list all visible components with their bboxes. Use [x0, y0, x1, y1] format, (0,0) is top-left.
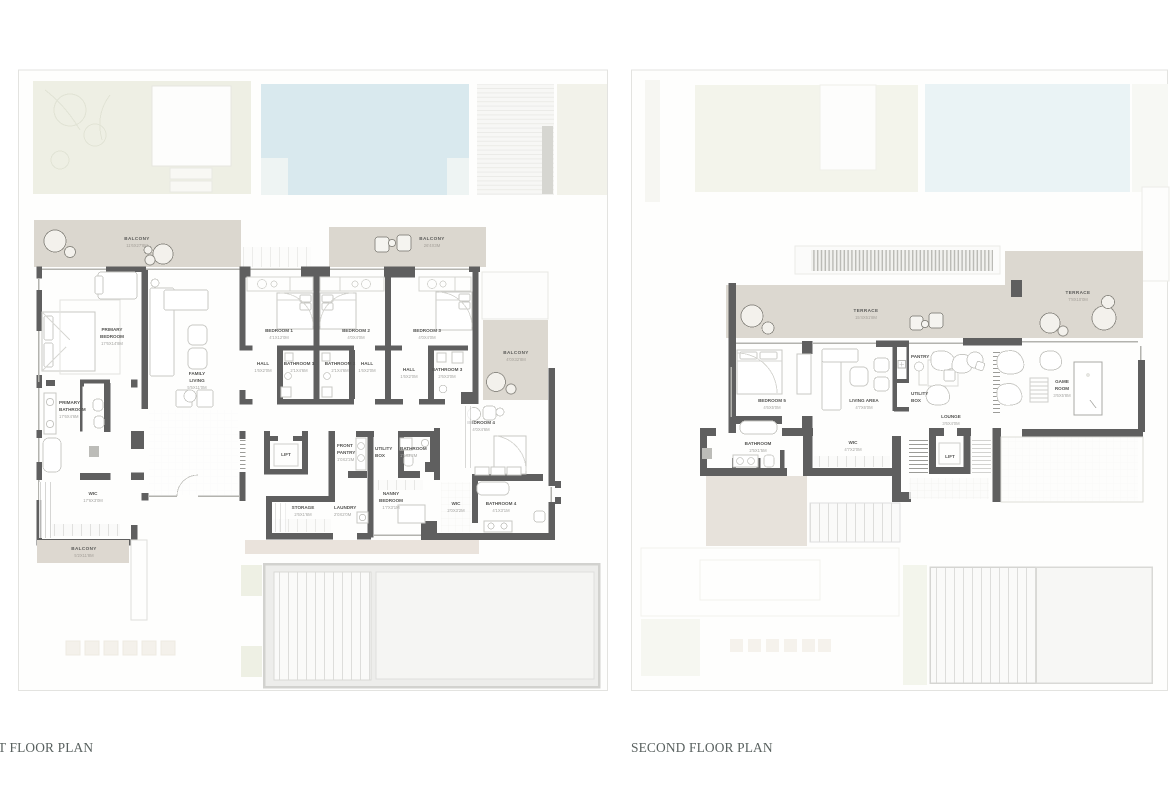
svg-text:BATHROOM 3: BATHROOM 3 — [432, 367, 463, 372]
svg-text:4'0X4'6M: 4'0X4'6M — [472, 427, 490, 432]
svg-text:15'4X51'8M: 15'4X51'8M — [855, 315, 877, 320]
svg-text:BALCONY: BALCONY — [419, 236, 445, 241]
svg-text:BEDROOM 5: BEDROOM 5 — [758, 398, 786, 403]
svg-text:HALL: HALL — [361, 361, 373, 366]
svg-text:2'0X2'0M: 2'0X2'0M — [334, 512, 352, 517]
svg-text:LOUNGE: LOUNGE — [941, 414, 961, 419]
svg-text:3'6X4'0M: 3'6X4'0M — [942, 421, 960, 426]
svg-text:STORAGE: STORAGE — [292, 505, 315, 510]
svg-text:4'1X12'0M: 4'1X12'0M — [269, 335, 289, 340]
svg-text:17'6X4'6M: 17'6X4'6M — [59, 414, 79, 419]
svg-text:1'6X2'0M: 1'6X2'0M — [358, 368, 376, 373]
svg-text:1'7X3'1M: 1'7X3'1M — [382, 505, 400, 510]
svg-text:1'0X2'2M: 1'0X2'2M — [337, 457, 355, 462]
svg-text:4'0X4'0M: 4'0X4'0M — [347, 335, 365, 340]
svg-text:TERRACE: TERRACE — [1065, 290, 1090, 295]
svg-text:BATHROOM 4: BATHROOM 4 — [486, 501, 517, 506]
svg-text:WIC: WIC — [89, 491, 99, 496]
svg-text:LIVING: LIVING — [189, 378, 205, 383]
svg-text:4'7X2'0M: 4'7X2'0M — [844, 447, 862, 452]
svg-text:2'6X1'6M: 2'6X1'6M — [294, 512, 312, 517]
svg-text:17'6X14'8M: 17'6X14'8M — [101, 341, 123, 346]
svg-text:BEDROOM 3: BEDROOM 3 — [413, 328, 441, 333]
svg-text:4'0X32'8M: 4'0X32'8M — [506, 357, 526, 362]
svg-text:BALCONY: BALCONY — [71, 546, 97, 551]
svg-text:BOX: BOX — [911, 398, 922, 403]
svg-text:1'5X2'2M: 1'5X2'2M — [400, 453, 418, 458]
svg-text:BALCONY: BALCONY — [124, 236, 150, 241]
svg-text:1'6X2'0M: 1'6X2'0M — [254, 368, 272, 373]
svg-text:BATHROOM 1: BATHROOM 1 — [284, 361, 315, 366]
svg-text:WIC: WIC — [452, 501, 462, 506]
svg-text:4'6X5'0M: 4'6X5'0M — [763, 405, 781, 410]
svg-text:PANTRY: PANTRY — [337, 450, 355, 455]
svg-text:PRIMARY: PRIMARY — [59, 400, 80, 405]
svg-text:LAUNDRY: LAUNDRY — [334, 505, 356, 510]
svg-text:PRIMARY: PRIMARY — [101, 327, 122, 332]
svg-text:LIFT: LIFT — [945, 454, 955, 459]
svg-text:2'1X4'6M: 2'1X4'6M — [331, 368, 349, 373]
svg-text:BALCONY: BALCONY — [503, 350, 529, 355]
svg-text:WIC: WIC — [849, 440, 859, 445]
svg-text:ROOM: ROOM — [1055, 386, 1069, 391]
svg-text:PANTRY: PANTRY — [911, 354, 929, 359]
svg-text:BATHROOM 2: BATHROOM 2 — [325, 361, 356, 366]
svg-text:UTILITY: UTILITY — [911, 391, 928, 396]
svg-text:BEDROOM 1: BEDROOM 1 — [265, 328, 293, 333]
svg-text:GAME: GAME — [1055, 379, 1069, 384]
svg-text:26'4X3M: 26'4X3M — [424, 243, 441, 248]
svg-text:UTILITY: UTILITY — [375, 446, 392, 451]
svg-text:HALL: HALL — [403, 367, 415, 372]
svg-text:4'0X4'0M: 4'0X4'0M — [418, 335, 436, 340]
svg-text:5'2X11'8M: 5'2X11'8M — [74, 553, 94, 558]
svg-text:5'5X11'0M: 5'5X11'0M — [187, 385, 207, 390]
svg-text:LIFT: LIFT — [281, 452, 291, 457]
svg-text:3'6X5'8M: 3'6X5'8M — [1053, 393, 1071, 398]
svg-text:BATHROOM: BATHROOM — [400, 446, 427, 451]
svg-text:BATHROOM: BATHROOM — [745, 441, 772, 446]
svg-text:BEDROOM 2: BEDROOM 2 — [342, 328, 370, 333]
svg-text:BEDROOM: BEDROOM — [379, 498, 403, 503]
svg-text:NANNY: NANNY — [383, 491, 399, 496]
svg-text:4'1X3'1M: 4'1X3'1M — [492, 508, 510, 513]
svg-text:FAMILY: FAMILY — [189, 371, 205, 376]
svg-text:LIVING AREA: LIVING AREA — [849, 398, 879, 403]
svg-text:1'6X2'0M: 1'6X2'0M — [400, 374, 418, 379]
svg-text:7'8X10'0M: 7'8X10'0M — [1068, 297, 1088, 302]
svg-text:2'6X3'0M: 2'6X3'0M — [438, 374, 456, 379]
svg-text:17'6X3'0M: 17'6X3'0M — [83, 498, 103, 503]
svg-text:2'5X1'5M: 2'5X1'5M — [749, 448, 767, 453]
svg-text:TERRACE: TERRACE — [853, 308, 878, 313]
svg-text:2'0X3'2M: 2'0X3'2M — [447, 508, 465, 513]
svg-text:BEDROOM: BEDROOM — [100, 334, 124, 339]
svg-text:BOX: BOX — [375, 453, 386, 458]
svg-text:4'7X6'0M: 4'7X6'0M — [855, 405, 873, 410]
svg-text:FRONT: FRONT — [337, 443, 353, 448]
svg-text:HALL: HALL — [257, 361, 269, 366]
svg-text:BATHROOM: BATHROOM — [59, 407, 86, 412]
svg-text:2'1X4'6M: 2'1X4'6M — [290, 368, 308, 373]
